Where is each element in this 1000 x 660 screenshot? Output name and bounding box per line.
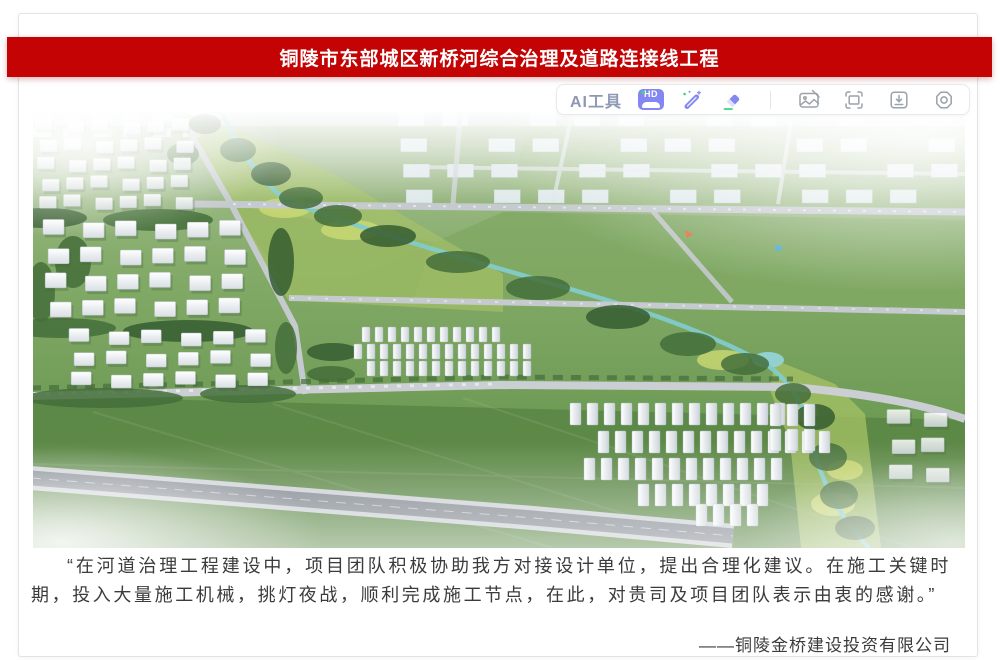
toolbar-left-group: AI工具 HD bbox=[570, 88, 744, 112]
toolbar-separator bbox=[770, 91, 771, 109]
ai-tools-button[interactable]: AI工具 bbox=[570, 88, 622, 112]
settings-button[interactable] bbox=[932, 88, 956, 112]
testimonial-attribution: ——铜陵金桥建设投资有限公司 bbox=[31, 631, 951, 656]
magic-pen-button[interactable] bbox=[680, 88, 704, 112]
project-title: 铜陵市东部城区新桥河综合治理及道路连接线工程 bbox=[279, 44, 719, 71]
hd-button[interactable]: HD bbox=[638, 88, 664, 112]
eraser-icon bbox=[720, 88, 744, 112]
settings-gear-icon bbox=[932, 88, 956, 112]
aerial-render-svg bbox=[33, 112, 965, 548]
download-button[interactable] bbox=[887, 88, 911, 112]
hd-icon: HD bbox=[638, 89, 664, 110]
haze-overlays bbox=[33, 112, 965, 548]
download-icon bbox=[887, 88, 911, 112]
image-edit-button[interactable] bbox=[797, 88, 821, 112]
image-toolbar: AI工具 HD bbox=[556, 84, 970, 115]
expand-icon bbox=[842, 88, 866, 112]
aerial-render-image bbox=[33, 112, 965, 548]
project-title-banner: 铜陵市东部城区新桥河综合治理及道路连接线工程 bbox=[7, 37, 992, 77]
image-edit-icon bbox=[797, 88, 821, 112]
testimonial-quote: “在河道治理工程建设中，项目团队积极协助我方对接设计单位，提出合理化建议。在施工… bbox=[31, 552, 951, 610]
expand-button[interactable] bbox=[842, 88, 866, 112]
ai-tools-label: AI工具 bbox=[570, 88, 622, 112]
magic-pen-icon bbox=[680, 88, 704, 112]
eraser-button[interactable] bbox=[720, 88, 744, 112]
toolbar-right-group bbox=[797, 88, 956, 112]
